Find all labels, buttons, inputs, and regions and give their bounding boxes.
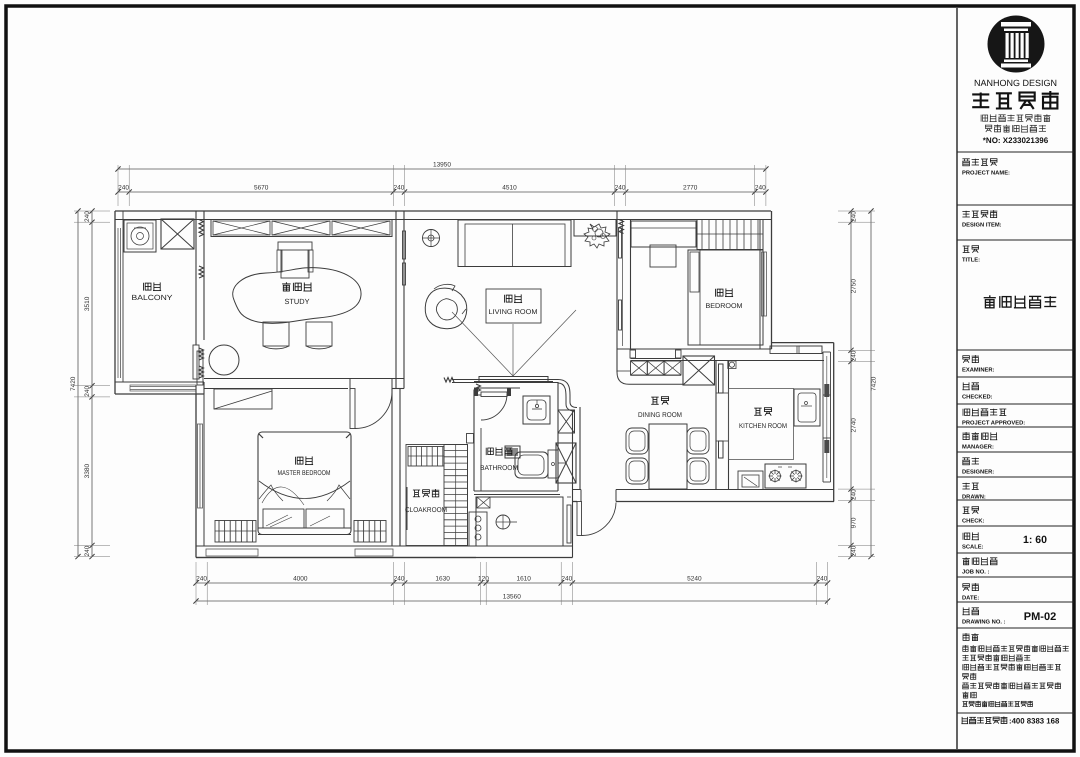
svg-text::400 8383 168: :400 8383 168: [1009, 717, 1060, 726]
svg-text:STUDY: STUDY: [285, 297, 310, 306]
svg-text:1: 60: 1: 60: [1023, 534, 1047, 546]
svg-text:BEDROOM: BEDROOM: [706, 303, 743, 310]
svg-text:240: 240: [118, 185, 129, 192]
svg-text:240: 240: [561, 576, 572, 583]
svg-text:13560: 13560: [503, 594, 521, 601]
svg-text:5240: 5240: [687, 576, 702, 583]
svg-text:240: 240: [615, 185, 626, 192]
svg-text:240: 240: [394, 576, 405, 583]
svg-text:DESIGNER:: DESIGNER:: [962, 469, 994, 476]
svg-text:1610: 1610: [516, 576, 531, 583]
svg-text:240: 240: [393, 185, 404, 192]
svg-text:3510: 3510: [84, 296, 91, 311]
svg-text:CHECK:: CHECK:: [962, 518, 985, 525]
svg-text:240: 240: [817, 576, 828, 583]
svg-text:MANAGER:: MANAGER:: [962, 444, 994, 451]
svg-text:4000: 4000: [293, 576, 308, 583]
svg-text:LIVING ROOM: LIVING ROOM: [489, 309, 538, 316]
svg-text:PROJECT NAME:: PROJECT NAME:: [962, 170, 1010, 177]
svg-text:13950: 13950: [433, 162, 451, 169]
svg-text:3380: 3380: [84, 463, 91, 478]
svg-text:240: 240: [851, 489, 858, 500]
svg-text:BALCONY: BALCONY: [132, 293, 173, 302]
svg-text:CLOAKROOM: CLOAKROOM: [405, 507, 447, 514]
svg-text:PROJECT APPROVED:: PROJECT APPROVED:: [962, 420, 1025, 427]
svg-text:NANHONG DESIGN: NANHONG DESIGN: [974, 78, 1057, 88]
svg-text:5670: 5670: [254, 185, 269, 192]
svg-text:KITCHEN ROOM: KITCHEN ROOM: [739, 423, 787, 430]
svg-text:*NO: X233021396: *NO: X233021396: [983, 136, 1049, 145]
svg-text:DRAWING NO. :: DRAWING NO. :: [962, 619, 1006, 626]
svg-text:BATHROOM: BATHROOM: [480, 465, 518, 472]
svg-text:970: 970: [851, 517, 858, 528]
svg-text:DRAWN:: DRAWN:: [962, 495, 986, 501]
svg-text:DINING ROOM: DINING ROOM: [638, 412, 682, 419]
svg-text:240: 240: [84, 545, 91, 556]
svg-text:CHECKED:: CHECKED:: [962, 394, 993, 401]
svg-text:2750: 2750: [851, 279, 858, 294]
svg-text:EXAMINER:: EXAMINER:: [962, 368, 995, 374]
svg-text:2740: 2740: [851, 418, 858, 433]
svg-text:240: 240: [851, 211, 858, 222]
svg-text:PM-02: PM-02: [1024, 611, 1056, 623]
svg-text:240: 240: [755, 185, 766, 192]
svg-text:240: 240: [851, 545, 858, 556]
svg-text:2770: 2770: [683, 185, 698, 192]
svg-text:DATE:: DATE:: [962, 596, 979, 602]
svg-text:240: 240: [84, 385, 91, 396]
svg-text:4510: 4510: [502, 185, 517, 192]
svg-text:120: 120: [478, 576, 489, 583]
svg-text:240: 240: [196, 576, 207, 583]
svg-text:DESIGN ITEM:: DESIGN ITEM:: [962, 222, 1002, 229]
svg-text:JOB NO. :: JOB NO. :: [962, 569, 989, 576]
svg-text:MASTER BEDROOM: MASTER BEDROOM: [278, 470, 331, 477]
svg-text:7420: 7420: [871, 376, 878, 391]
svg-text:SCALE:: SCALE:: [962, 544, 984, 551]
svg-text:1630: 1630: [435, 576, 450, 583]
svg-text:TITLE:: TITLE:: [962, 258, 980, 264]
svg-text:240: 240: [84, 211, 91, 222]
svg-text:7420: 7420: [70, 376, 77, 391]
svg-text:240: 240: [851, 350, 858, 361]
